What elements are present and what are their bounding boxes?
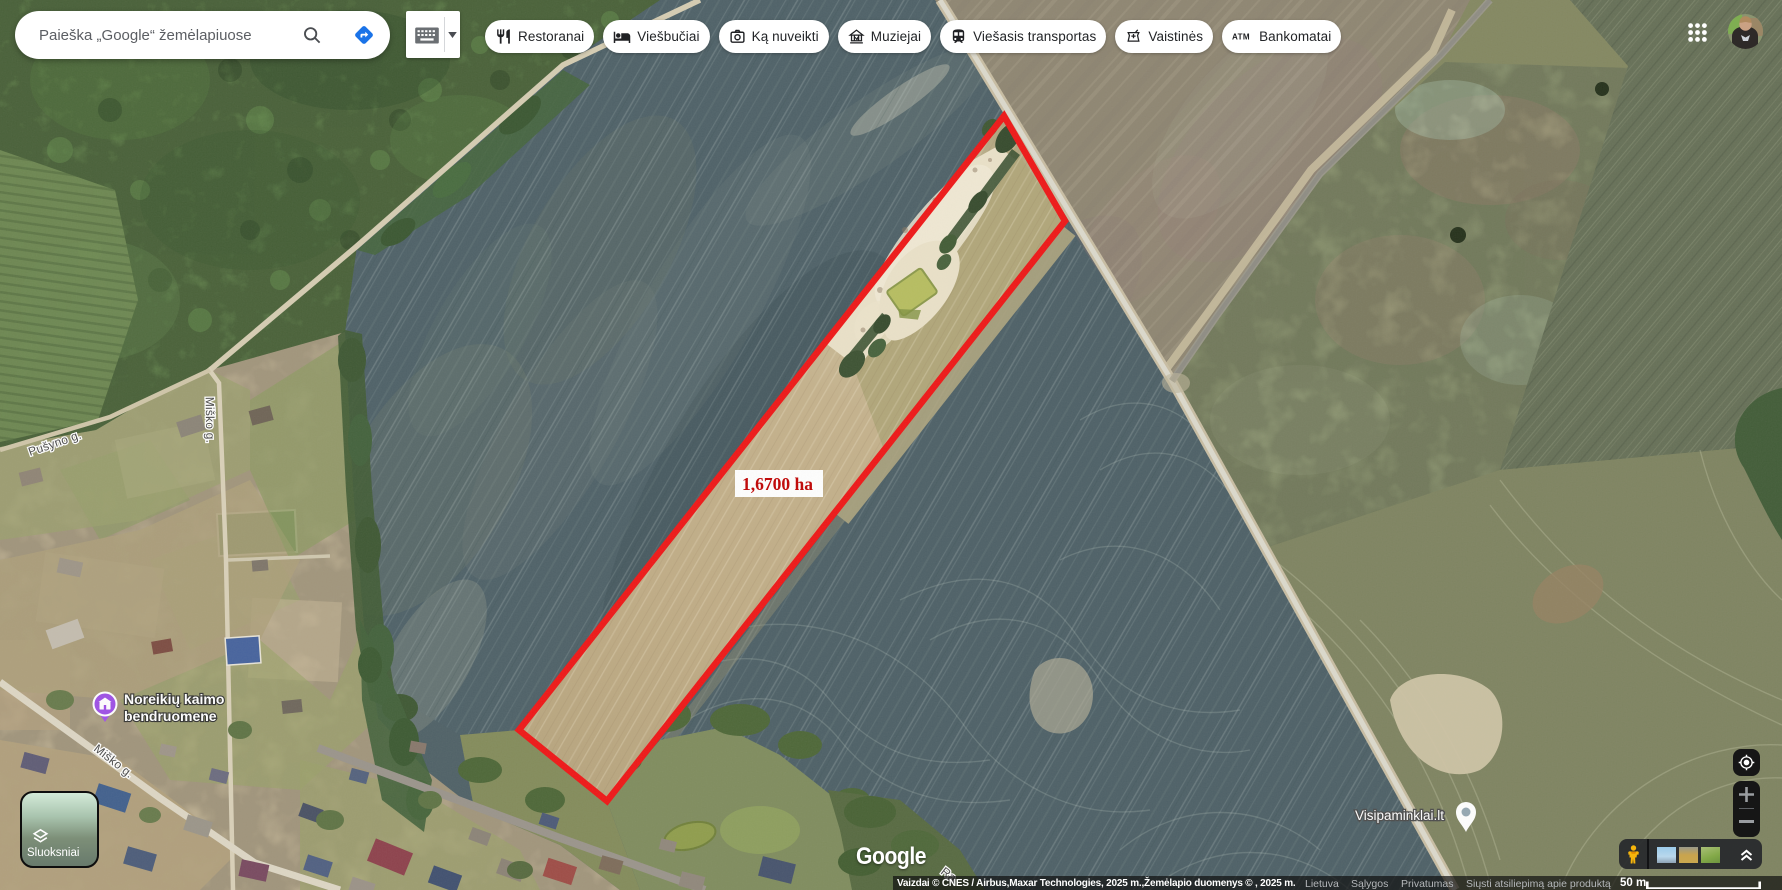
svg-text:ATM: ATM (1232, 32, 1250, 41)
